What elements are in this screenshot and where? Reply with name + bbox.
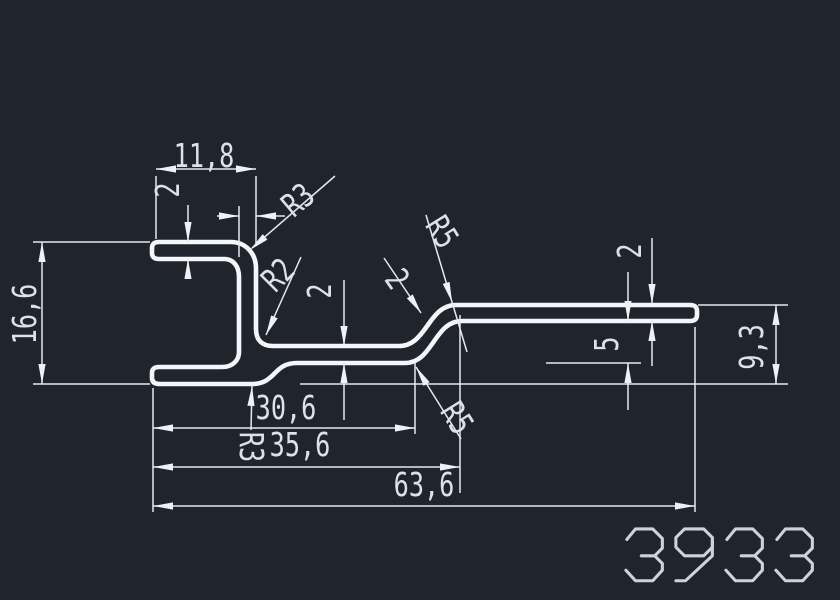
dim-arrowhead — [395, 424, 415, 431]
dim-arrowhead — [416, 367, 430, 386]
dim-label-mid-thickness: 2 — [301, 283, 339, 298]
dim-label-top-thickness: 2 — [149, 182, 187, 197]
dim-label-radius-s-lower: R5 — [433, 395, 481, 441]
dim-arrowhead — [624, 301, 631, 321]
dim-label-right-thickness: 2 — [611, 243, 649, 258]
dim-arrowhead — [153, 502, 173, 509]
dim-label-radius-top: R3 — [274, 176, 322, 225]
dim-label-total-length: 63,6 — [394, 466, 455, 504]
part-number-digit-stroke — [776, 556, 812, 581]
dim-label-length-to-arm: 35,6 — [270, 426, 331, 464]
dim-label-radius-s-upper: R5 — [418, 209, 466, 255]
dim-arrowhead — [256, 212, 276, 219]
dim-arrowhead — [266, 315, 278, 335]
dim-arrowhead — [340, 326, 347, 346]
dim-label-radius-inner: R2 — [254, 251, 302, 299]
dim-label-right-offset: 5 — [588, 336, 626, 351]
dim-arrowhead — [624, 363, 631, 383]
dimension-lines — [33, 169, 788, 512]
dim-label-radius-bottom: R3 — [232, 432, 270, 462]
dim-arrowhead — [340, 363, 347, 383]
dim-arrowhead — [648, 321, 655, 341]
dim-arrowhead — [184, 259, 191, 279]
part-number-digit-stroke — [676, 529, 712, 556]
dim-arrowhead — [648, 284, 655, 304]
dim-arrowhead — [153, 424, 173, 431]
cad-drawing: 11,8 2 R3 R2 2 2 R5 2 5 9,3 16,6 30,6 R3… — [0, 0, 840, 600]
part-number-digit-stroke — [726, 556, 762, 581]
dim-arrowhead — [407, 294, 421, 313]
dim-label-diag-thickness: 2 — [377, 262, 417, 296]
dim-label-right-height: 9,3 — [733, 324, 771, 370]
dim-arrowhead — [38, 242, 45, 262]
dim-arrowhead — [247, 386, 254, 406]
dim-arrowhead — [443, 282, 452, 302]
part-number-digit-stroke — [777, 529, 813, 556]
part-number-digit-stroke — [676, 540, 712, 580]
dim-arrowhead — [184, 222, 191, 242]
part-number-digit-stroke — [627, 529, 663, 556]
dim-arrowhead — [153, 463, 173, 470]
dim-arrowhead — [772, 305, 779, 325]
dim-label-length-to-bend: 30,6 — [256, 389, 317, 427]
part-number-digit-stroke — [727, 529, 763, 556]
dim-arrowhead — [219, 212, 239, 219]
part-number — [626, 529, 812, 581]
cad-viewport: 11,8 2 R3 R2 2 2 R5 2 5 9,3 16,6 30,6 R3… — [0, 0, 840, 600]
dim-arrowhead — [675, 502, 695, 509]
dim-arrowhead — [772, 364, 779, 384]
dimension-arrows — [38, 165, 779, 509]
part-number-digit-stroke — [626, 556, 662, 581]
dim-arrowhead — [236, 165, 256, 172]
dim-arrowhead — [38, 364, 45, 384]
dim-label-total-height: 16,6 — [6, 284, 44, 345]
dim-label-top-width: 11,8 — [174, 137, 235, 175]
